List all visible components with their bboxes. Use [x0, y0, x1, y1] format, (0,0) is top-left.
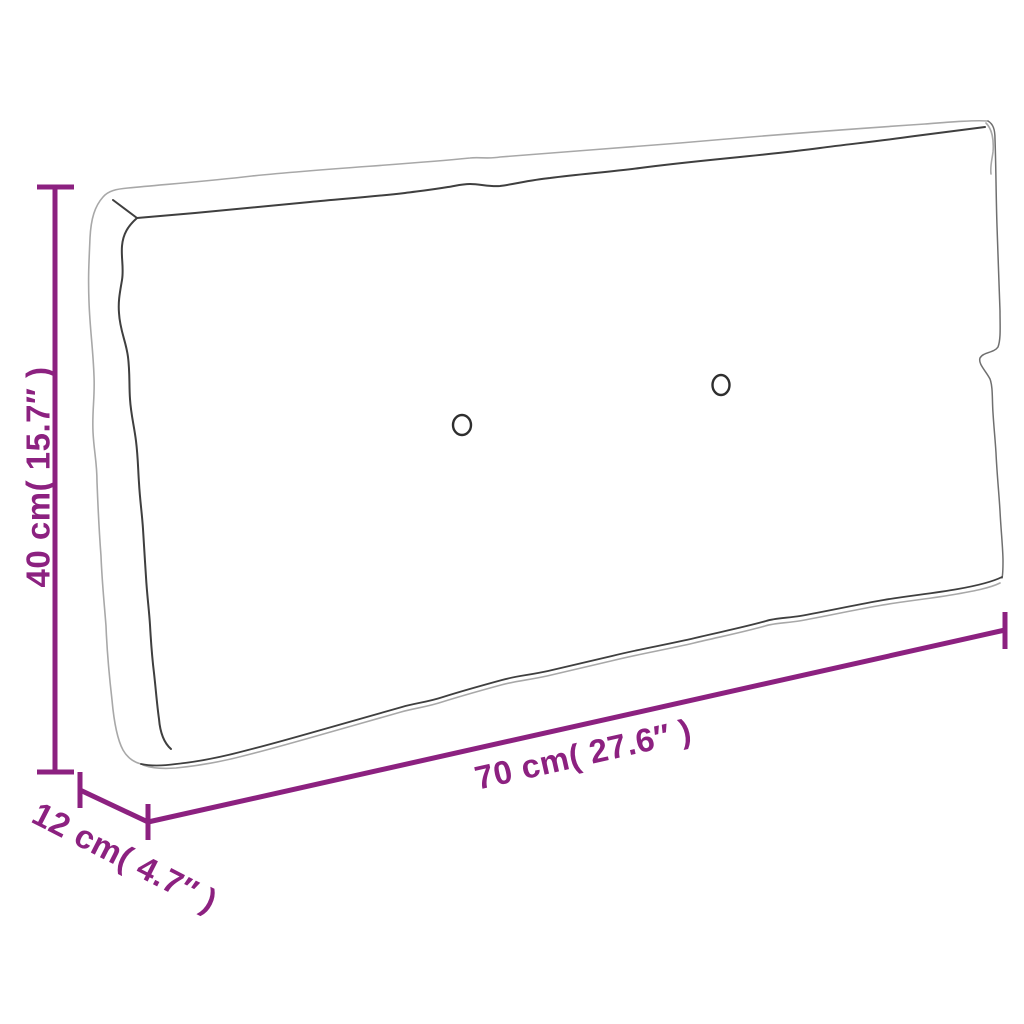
dimension-diagram-canvas: 40 cm( 15.7″ ) 70 cm( 27.6″ ) 12 cm( 4.7… [0, 0, 1024, 1024]
width-dimension-line [148, 612, 1005, 840]
cushion-top-seam [137, 127, 985, 218]
cushion-buttons [453, 375, 730, 435]
cushion-left-top-outline [89, 121, 988, 764]
tuft-button-left-icon [453, 415, 471, 435]
cushion-seam [113, 127, 985, 749]
depth-line [80, 790, 148, 822]
height-dimension-label: 40 cm( 15.7″ ) [20, 367, 57, 588]
pallet-cushion-dimension-svg: 40 cm( 15.7″ ) 70 cm( 27.6″ ) 12 cm( 4.7… [0, 0, 1024, 1024]
tuft-button-right-icon [713, 375, 730, 395]
dimension-labels: 40 cm( 15.7″ ) 70 cm( 27.6″ ) 12 cm( 4.7… [20, 367, 695, 920]
depth-dimension-line [80, 772, 148, 822]
cushion-top-right-fold [986, 123, 993, 174]
cushion-corner-seam-branch [113, 200, 137, 218]
cushion-right-outline [980, 121, 1003, 578]
cushion-right-edge [980, 121, 1003, 578]
cushion-left-seam [119, 218, 171, 749]
dimension-lines [37, 187, 1005, 840]
width-line [148, 630, 1005, 822]
cushion-drawing [89, 121, 1003, 769]
